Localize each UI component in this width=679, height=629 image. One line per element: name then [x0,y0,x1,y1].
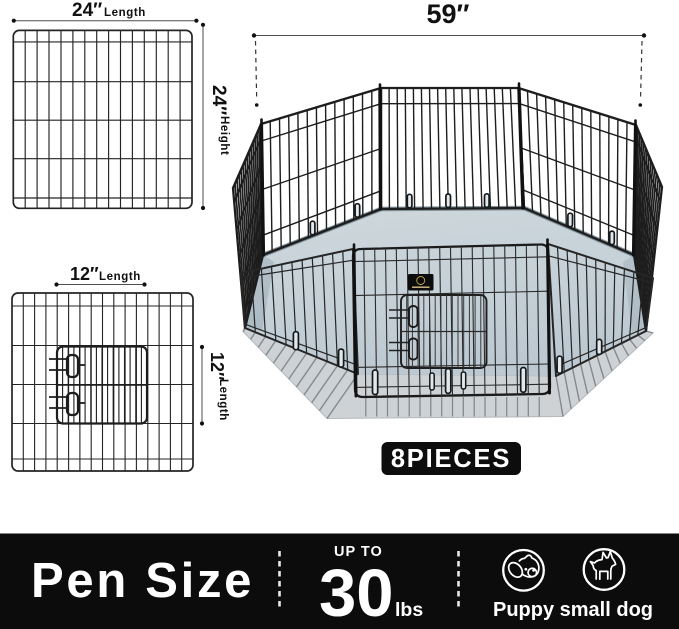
svg-text:12″: 12″ [207,352,227,381]
svg-text:24″: 24″ [72,0,102,21]
svg-text:Length: Length [104,7,146,19]
svg-text:30: 30 [319,556,394,629]
svg-text:24″: 24″ [208,85,229,115]
svg-text:Length: Length [217,379,229,421]
svg-text:Pen Size: Pen Size [31,554,254,608]
svg-text:Puppy small dog: Puppy small dog [493,599,653,621]
svg-text:Length: Length [99,271,141,283]
svg-text:lbs: lbs [395,599,423,621]
svg-text:Height: Height [218,116,230,155]
svg-text:8PIECES: 8PIECES [391,445,511,473]
svg-text:12″: 12″ [70,264,99,284]
svg-text:59″: 59″ [427,0,470,29]
